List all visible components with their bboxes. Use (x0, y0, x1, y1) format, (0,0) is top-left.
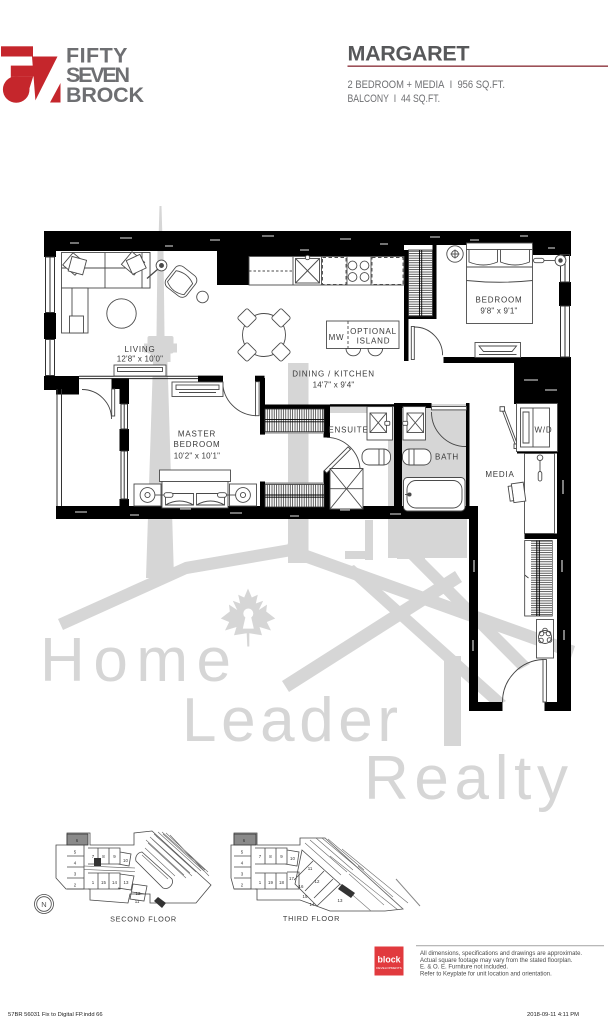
svg-text:BALCONY I 44 SQ.FT.: BALCONY I 44 SQ.FT. (348, 93, 441, 105)
svg-text:ENSUITE: ENSUITE (328, 425, 368, 434)
svg-text:Actual square footage may vary: Actual square footage may vary from the … (420, 958, 573, 964)
svg-text:10: 10 (290, 856, 295, 861)
svg-text:11: 11 (135, 899, 140, 904)
svg-text:14: 14 (310, 902, 315, 907)
svg-text:17: 17 (289, 876, 294, 881)
svg-text:Realty: Realty (364, 744, 570, 813)
svg-text:DEVELOPMENTS: DEVELOPMENTS (376, 966, 401, 970)
svg-text:BATH: BATH (435, 453, 459, 462)
svg-text:15: 15 (303, 894, 308, 899)
svg-text:Refer to Keyplate for unit loc: Refer to Keyplate for unit location and … (420, 971, 552, 977)
svg-text:16: 16 (299, 884, 304, 889)
svg-text:BEDROOM: BEDROOM (174, 440, 221, 449)
svg-text:13: 13 (124, 880, 129, 885)
svg-text:13: 13 (338, 898, 343, 903)
svg-text:MW: MW (329, 333, 345, 342)
svg-text:MASTER: MASTER (178, 430, 216, 439)
svg-text:block: block (378, 955, 401, 965)
svg-text:LIVING: LIVING (124, 345, 155, 354)
svg-text:OPTIONAL: OPTIONAL (350, 327, 397, 336)
svg-text:MEDIA: MEDIA (485, 470, 514, 479)
svg-text:E. & O. E. Furniture not inclu: E. & O. E. Furniture not included. (420, 965, 508, 971)
svg-text:SECOND FLOOR: SECOND FLOOR (110, 915, 177, 924)
svg-text:9'8" x 9'1": 9'8" x 9'1" (480, 307, 517, 316)
svg-text:BROCK: BROCK (66, 83, 144, 107)
svg-text:N: N (41, 900, 46, 909)
svg-text:ISLAND: ISLAND (357, 337, 391, 346)
svg-text:14'7" x 9'4": 14'7" x 9'4" (313, 380, 355, 389)
svg-text:10'2" x 10'1": 10'2" x 10'1" (174, 452, 220, 461)
svg-text:W/D: W/D (535, 425, 553, 434)
svg-text:18: 18 (279, 880, 284, 885)
svg-text:DINING / KITCHEN: DINING / KITCHEN (292, 370, 375, 379)
svg-text:All dimensions, specifications: All dimensions, specifications and drawi… (420, 951, 582, 957)
svg-text:11: 11 (308, 866, 313, 871)
svg-text:2 BEDROOM + MEDIA I 956 SQ.F: 2 BEDROOM + MEDIA I 956 SQ.FT. (348, 79, 506, 91)
svg-text:57BR 56031 Fix to Digital FP.i: 57BR 56031 Fix to Digital FP.indd 66 (8, 1012, 103, 1018)
svg-text:10: 10 (123, 858, 128, 863)
svg-text:15: 15 (101, 880, 106, 885)
svg-text:12'8" x 10'0": 12'8" x 10'0" (117, 355, 163, 364)
svg-text:THIRD FLOOR: THIRD FLOOR (283, 914, 340, 923)
svg-text:Home: Home (40, 626, 233, 695)
svg-text:12: 12 (136, 891, 141, 896)
svg-text:19: 19 (268, 880, 273, 885)
svg-text:2018-09-11 4:11 PM: 2018-09-11 4:11 PM (527, 1012, 579, 1018)
svg-text:12: 12 (315, 879, 320, 884)
svg-text:MARGARET: MARGARET (348, 41, 470, 65)
svg-text:14: 14 (112, 880, 117, 885)
svg-text:BEDROOM: BEDROOM (476, 296, 523, 305)
